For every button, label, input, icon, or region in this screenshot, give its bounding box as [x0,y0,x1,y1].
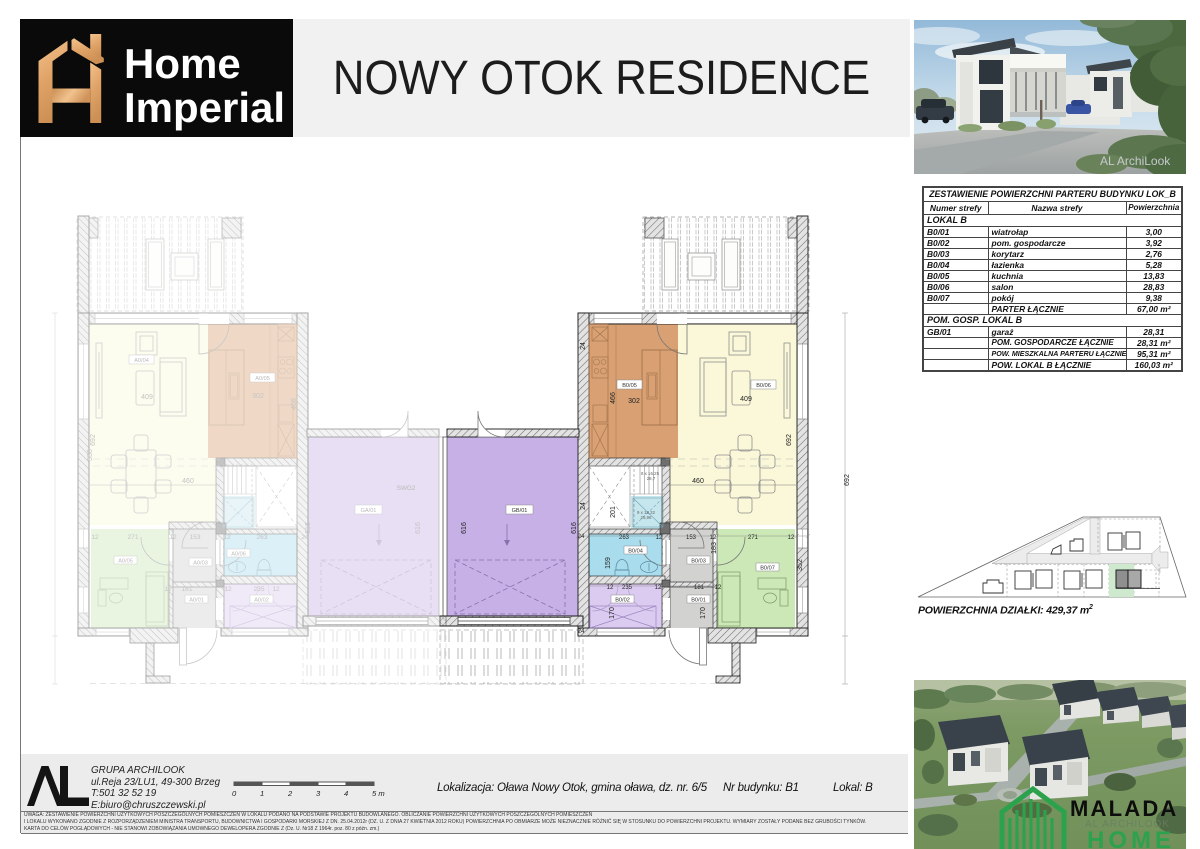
svg-text:460: 460 [692,478,704,485]
svg-text:409: 409 [740,396,752,403]
svg-text:B0/04: B0/04 [628,549,643,555]
svg-text:616: 616 [461,522,468,534]
svg-text:302: 302 [628,398,640,405]
svg-text:B0/06: B0/06 [756,383,771,389]
svg-text:302: 302 [252,393,264,400]
svg-text:25,96: 25,96 [641,515,653,520]
svg-text:466: 466 [291,398,298,410]
svg-text:B0/07: B0/07 [760,566,775,572]
svg-text:B0/02: B0/02 [615,598,630,604]
svg-text:A0/05: A0/05 [118,559,133,565]
svg-text:GA/01: GA/01 [361,508,377,514]
svg-text:3: 3 [316,789,321,798]
svg-text:12: 12 [91,534,99,541]
svg-text:12: 12 [169,534,177,541]
svg-text:201: 201 [610,506,617,518]
svg-text:271: 271 [127,534,138,541]
svg-text:SWG2: SWG2 [397,485,416,492]
svg-text:B0/01: B0/01 [691,598,706,604]
svg-text:616: 616 [571,522,578,534]
svg-text:2: 2 [287,789,293,798]
svg-text:A0/04: A0/04 [134,358,149,364]
svg-text:460: 460 [182,478,194,485]
svg-text:466: 466 [610,392,617,404]
svg-text:A0/06: A0/06 [231,552,246,558]
svg-text:692: 692 [90,434,97,446]
svg-text:A0/05: A0/05 [255,376,270,382]
svg-text:263: 263 [256,534,267,541]
svg-text:24: 24 [580,502,587,510]
svg-text:153: 153 [189,534,200,541]
svg-text:B0/05: B0/05 [622,383,637,389]
svg-text:A0/01: A0/01 [189,598,204,604]
svg-text:181: 181 [181,586,192,593]
svg-text:159: 159 [605,557,612,569]
svg-text:4: 4 [344,789,348,798]
svg-text:24: 24 [580,342,587,350]
svg-text:A0/03: A0/03 [193,561,208,567]
svg-text:692: 692 [844,474,851,486]
svg-text:12: 12 [164,586,172,593]
svg-text:12: 12 [272,586,280,593]
svg-text:550: 550 [87,449,94,461]
svg-text:616: 616 [415,522,422,534]
svg-text:183: 183 [711,542,718,554]
svg-text:12: 12 [223,534,231,541]
svg-text:24: 24 [578,534,585,540]
svg-text:235: 235 [253,586,264,593]
svg-text:A0/02: A0/02 [254,598,269,604]
svg-text:5 m: 5 m [372,789,385,798]
svg-text:24: 24 [301,534,309,541]
svg-text:0: 0 [232,789,237,798]
svg-text:352: 352 [797,559,804,571]
svg-text:170: 170 [609,607,616,619]
svg-text:170: 170 [700,607,707,619]
svg-text:409: 409 [141,394,153,401]
svg-text:GB/01: GB/01 [512,508,528,514]
svg-text:616: 616 [305,522,312,534]
svg-text:B0/03: B0/03 [691,559,706,565]
svg-text:692: 692 [786,434,793,446]
svg-text:1: 1 [260,789,264,798]
svg-text:24: 24 [578,629,585,635]
svg-text:12: 12 [224,586,232,593]
svg-text:28,7: 28,7 [647,476,656,481]
